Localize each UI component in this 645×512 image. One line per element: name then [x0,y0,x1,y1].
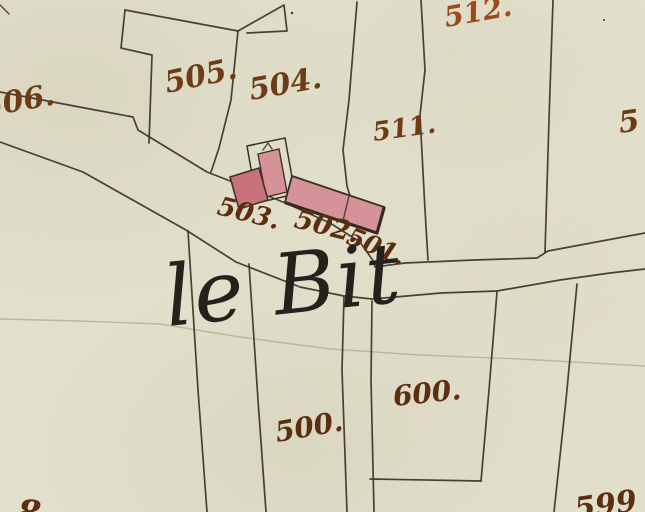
ink-speck [291,12,293,14]
map-container: 506. 505. 504. 512. 511. 5 503. 502. 501… [0,0,645,512]
parcel-label-8-cut: 8 [14,492,43,512]
ink-speck [603,19,605,21]
cadastral-map: 506. 505. 504. 512. 511. 5 503. 502. 501… [0,0,645,512]
